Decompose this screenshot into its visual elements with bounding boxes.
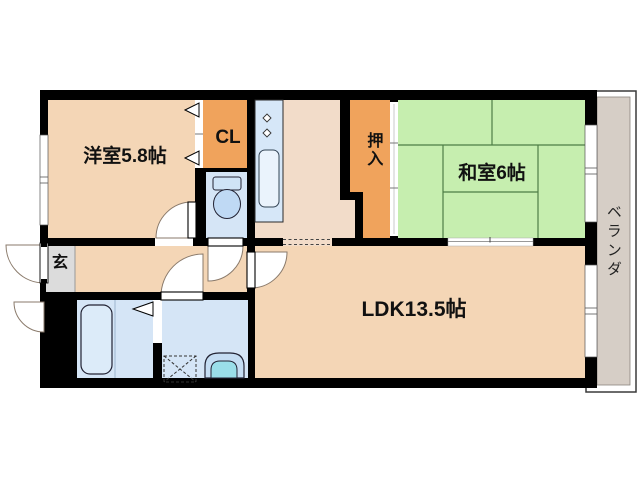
label-oshiire: 押入 xyxy=(364,132,381,168)
bathroom-door-opening xyxy=(153,300,162,343)
label-western-room: 洋室5.8帖 xyxy=(83,147,166,167)
oshiire-floor-lower xyxy=(363,100,390,238)
japanese-room-window xyxy=(585,125,597,222)
toilet-tank xyxy=(213,177,241,190)
kitchen-floor-jog xyxy=(340,200,355,238)
label-veranda: ベランダ xyxy=(605,204,621,280)
label-ldk: LDK13.5帖 xyxy=(361,299,466,321)
western-room-window xyxy=(40,135,48,225)
toilet-door-leaf xyxy=(208,238,243,246)
western-room-door-opening xyxy=(155,238,193,246)
label-japanese-room: 和室6帖 xyxy=(458,164,526,184)
western-room-door-leaf xyxy=(188,202,196,238)
label-entrance: 玄 xyxy=(52,256,68,273)
wash-basin-bowl xyxy=(211,361,237,378)
entrance-door-swing xyxy=(6,245,44,283)
entrance-door-leaf xyxy=(40,243,48,283)
floor-plan: 洋室5.8帖 CL 押入 和室6帖 LDK13.5帖 玄 ベランダ xyxy=(0,0,640,480)
bathtub xyxy=(81,305,112,374)
kitchen-opening xyxy=(283,238,332,246)
toilet-bowl xyxy=(214,190,241,219)
floor-plan-drawing xyxy=(0,0,640,480)
storage-door-swing xyxy=(14,302,44,332)
washroom-door-leaf xyxy=(161,292,203,300)
ldk-door-leaf xyxy=(247,252,255,288)
japanese-room-sliding-door xyxy=(448,237,533,246)
ldk-window xyxy=(585,265,597,357)
label-closet: CL xyxy=(215,128,240,148)
kitchen-sink xyxy=(259,150,279,207)
